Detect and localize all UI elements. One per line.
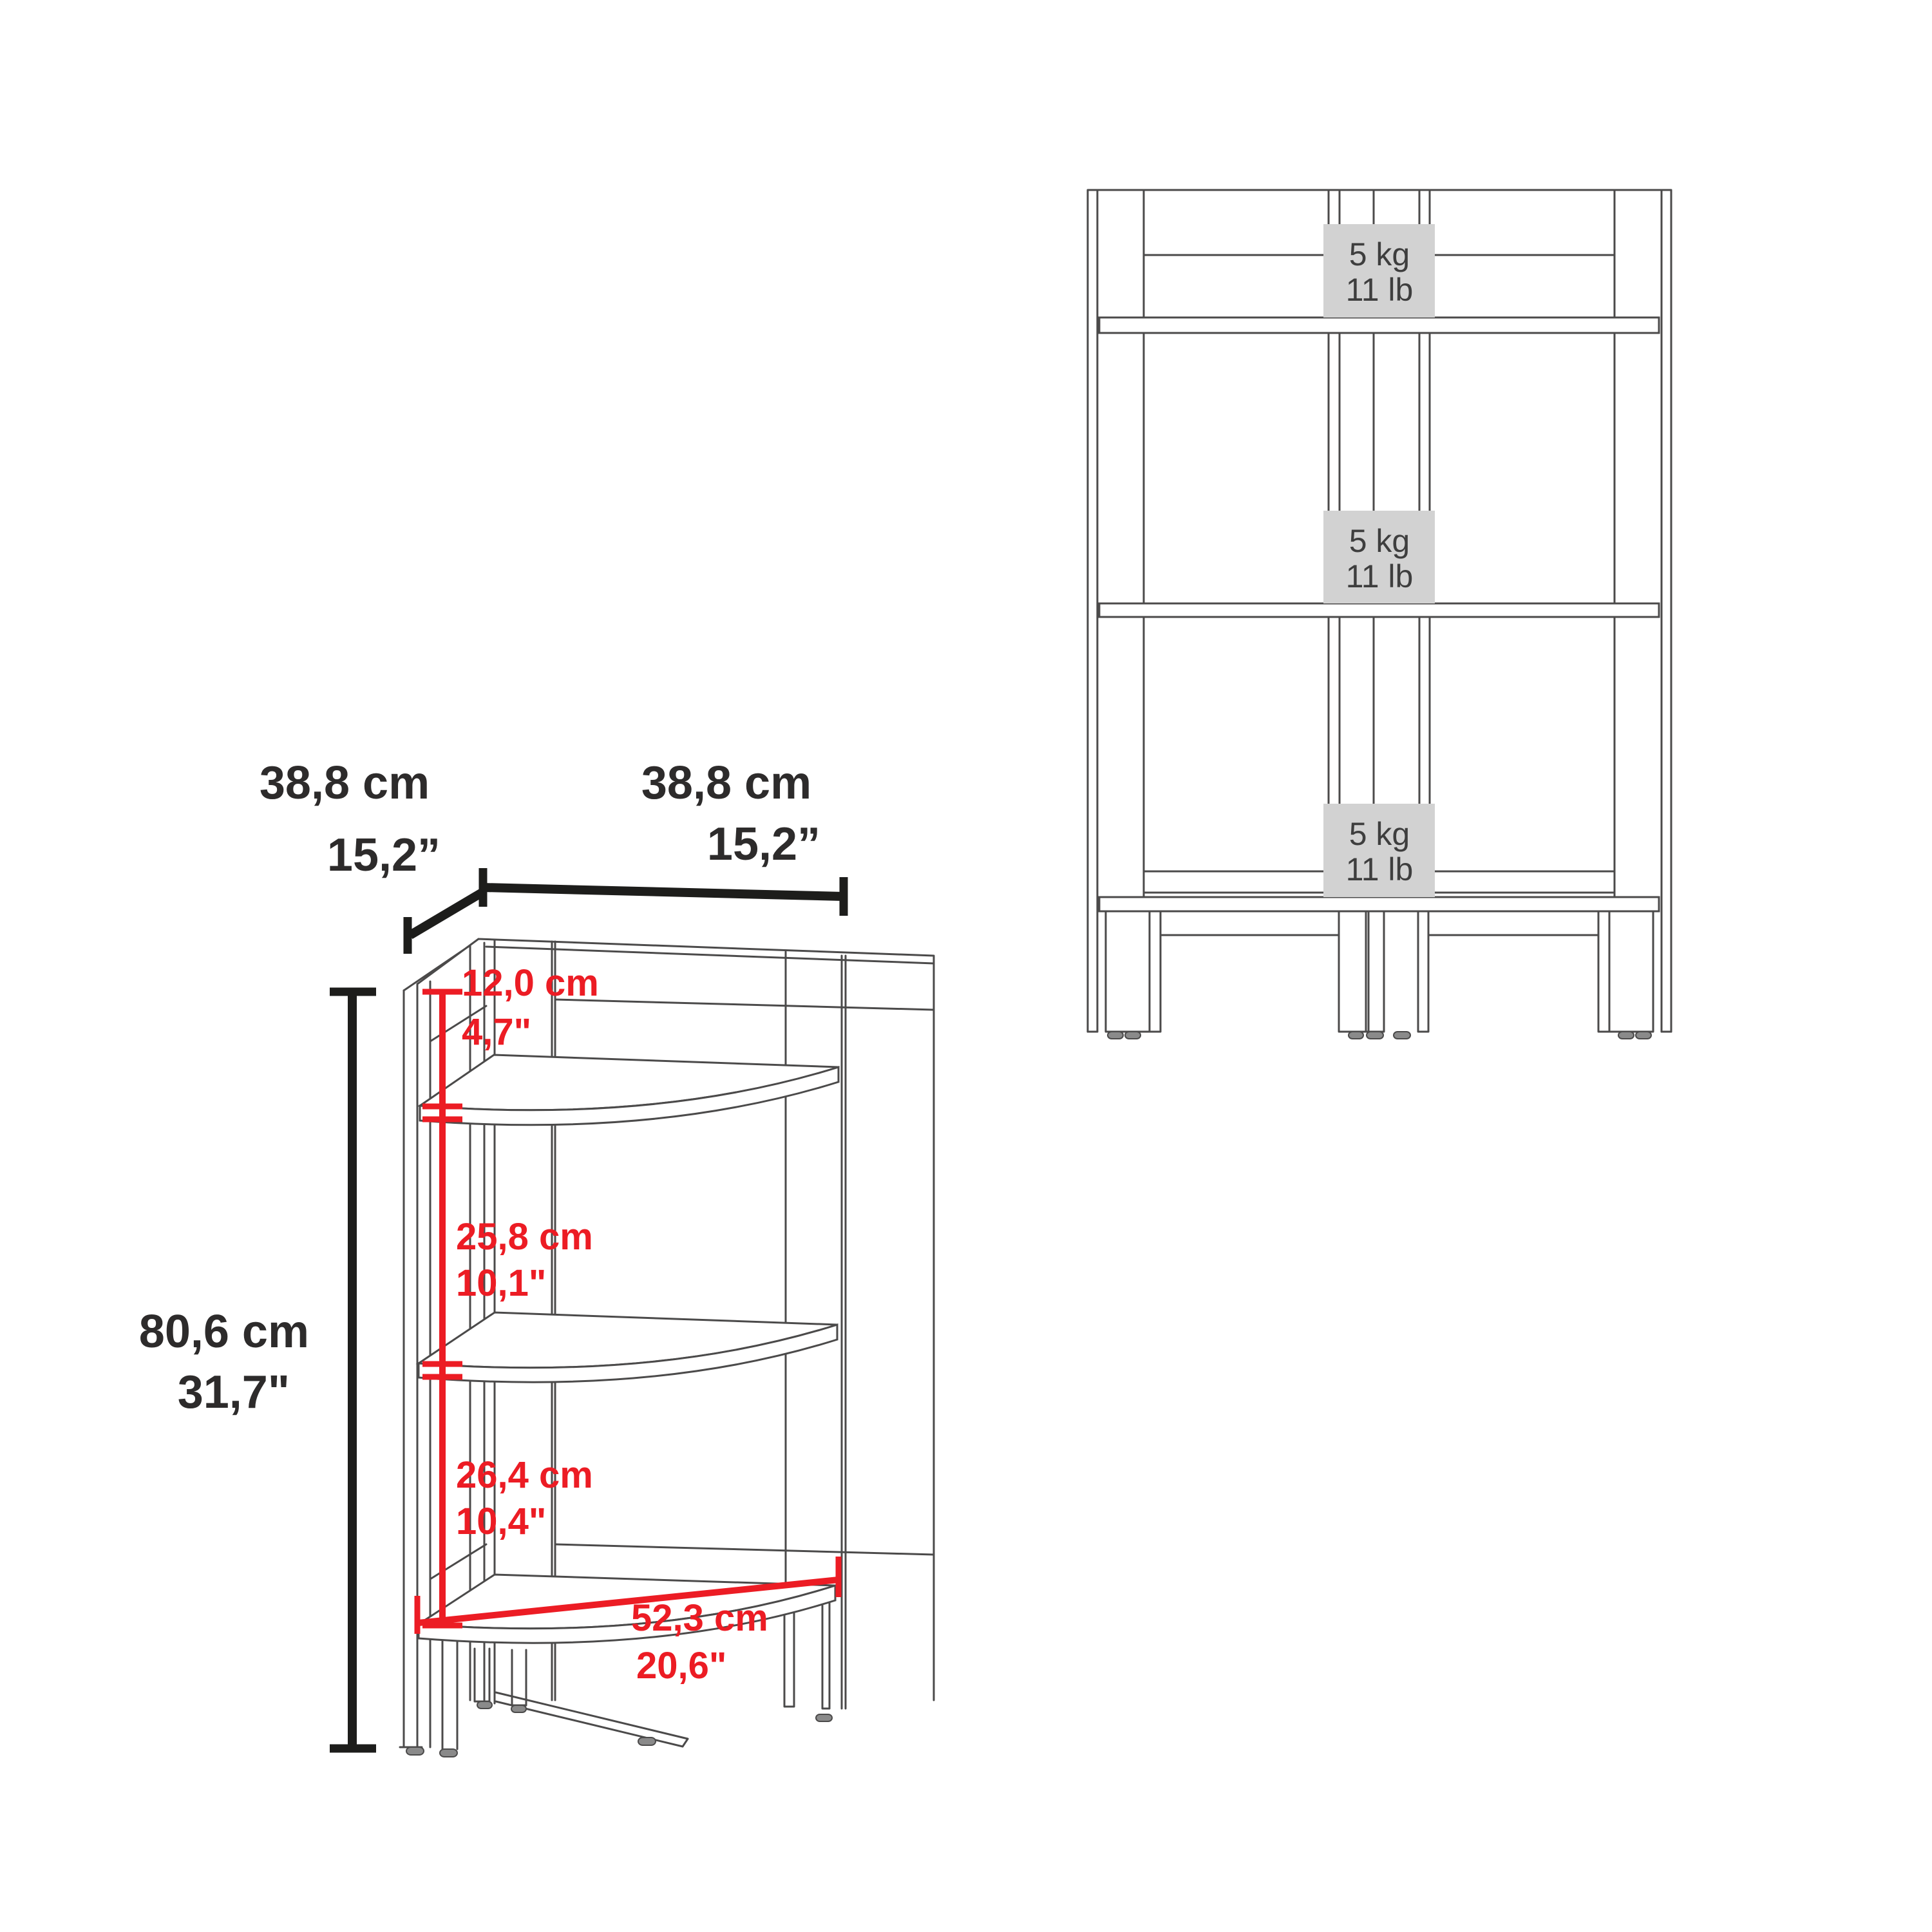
capacity-badge: 5 kg 11 lb — [1323, 224, 1435, 317]
capacity-lb: 11 lb — [1346, 558, 1414, 594]
height-inch-label: 31,7" — [178, 1367, 290, 1418]
shelf-middle — [419, 1312, 837, 1382]
shelf-top — [420, 1055, 838, 1125]
diagonal-inch-label: 20,6" — [636, 1645, 726, 1687]
front-feet — [1108, 1032, 1651, 1039]
top-gap-cm-label: 12,0 cm — [462, 962, 599, 1004]
front-shelf-middle — [1099, 603, 1659, 617]
front-shelf-top — [1099, 317, 1659, 333]
top-gap-inch-label: 4,7" — [462, 1011, 531, 1053]
width-cm-label: 38,8 cm — [641, 757, 811, 809]
bottom-gap-cm-label: 26,4 cm — [456, 1454, 593, 1496]
capacity-lb: 11 lb — [1346, 851, 1414, 887]
bottom-gap-inch-label: 10,4" — [456, 1501, 546, 1542]
diagonal-cm-label: 52,3 cm — [631, 1597, 768, 1639]
front-leg-lines — [1088, 911, 1671, 1032]
height-cm-label: 80,6 cm — [139, 1306, 309, 1358]
middle-gap-cm-label: 25,8 cm — [456, 1216, 593, 1258]
width-inch-label: 15,2” — [707, 819, 820, 870]
corner-shelf-dimensions-diagram: 38,8 cm 15,2” 38,8 cm 15,2” 80,6 cm 31,7… — [0, 0, 1932, 1932]
middle-gap-inch-label: 10,1" — [456, 1262, 546, 1304]
capacity-kg: 5 kg — [1349, 523, 1410, 559]
perspective-view: 38,8 cm 15,2” 38,8 cm 15,2” 80,6 cm 31,7… — [139, 757, 934, 1757]
front-shelf-bottom — [1099, 897, 1659, 911]
feet — [406, 1701, 832, 1757]
capacity-badge: 5 kg 11 lb — [1323, 511, 1435, 603]
capacity-badge: 5 kg 11 lb — [1323, 804, 1435, 897]
depth-inch-label: 15,2” — [327, 829, 440, 881]
capacity-kg: 5 kg — [1349, 816, 1410, 852]
capacity-kg: 5 kg — [1349, 236, 1410, 272]
capacity-lb: 11 lb — [1346, 272, 1414, 308]
front-view: 5 kg 11 lb 5 kg 11 lb 5 kg 11 lb — [1088, 190, 1671, 1039]
depth-cm-label: 38,8 cm — [260, 757, 430, 809]
